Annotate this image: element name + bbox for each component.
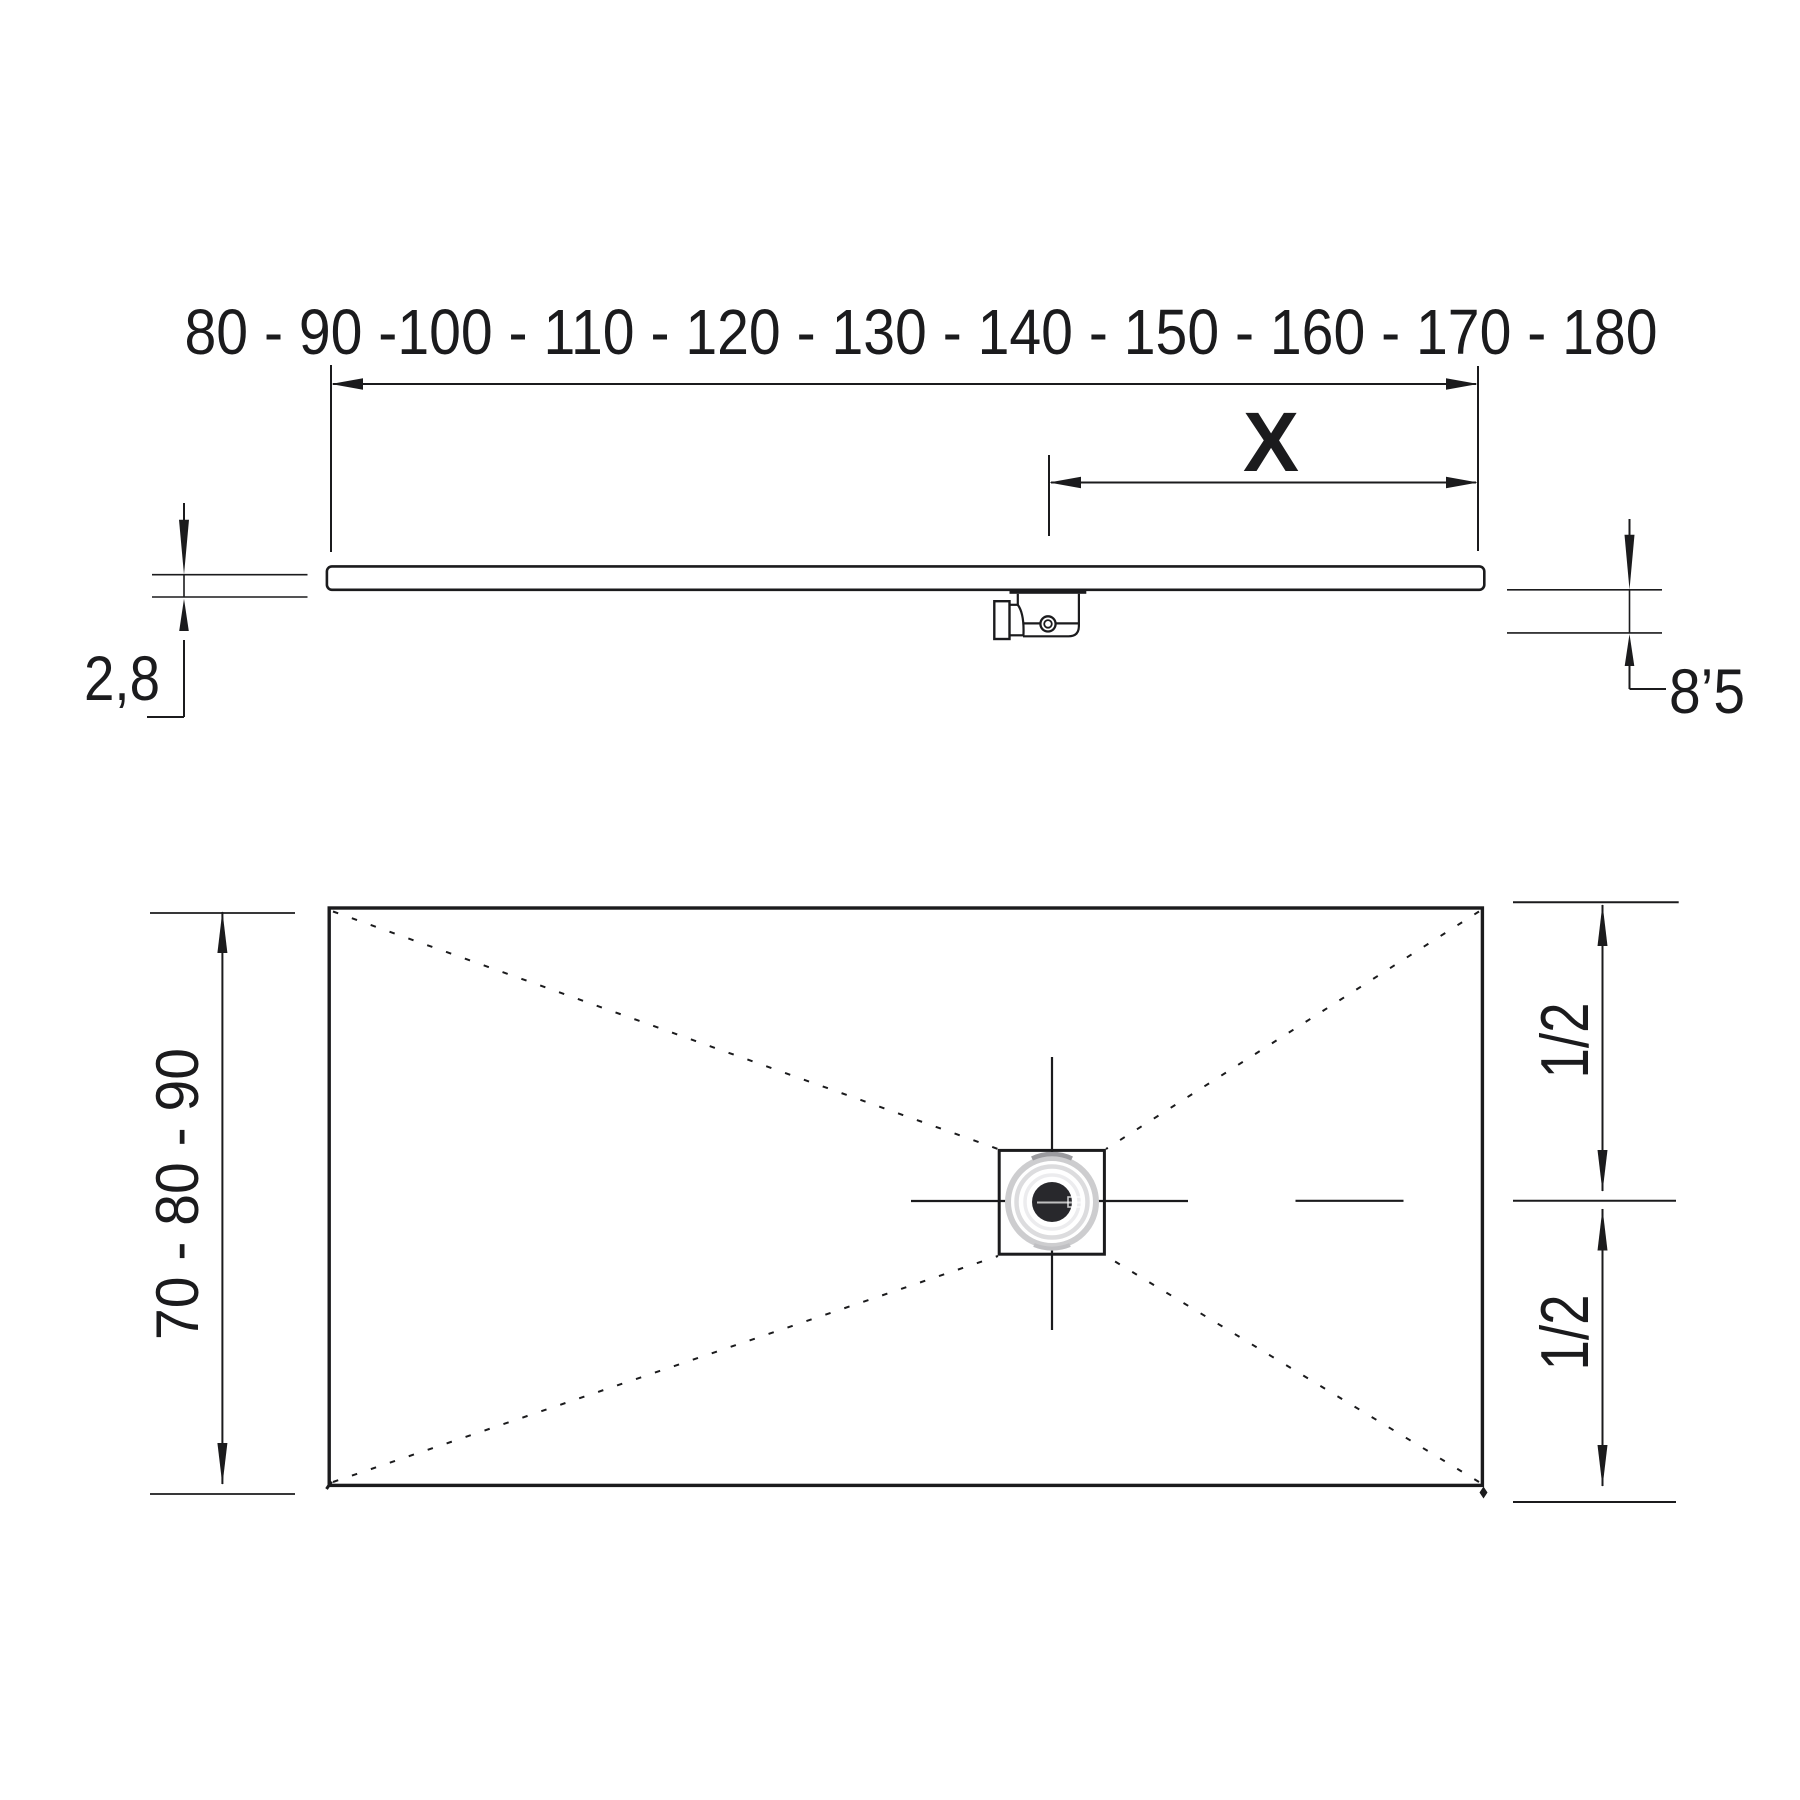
svg-text:70 - 80 - 90: 70 - 80 - 90 — [144, 1048, 211, 1340]
svg-text:X: X — [1243, 395, 1299, 489]
svg-text:2,8: 2,8 — [84, 644, 160, 714]
svg-text:80 - 90 -100 - 110 - 120 - 130: 80 - 90 -100 - 110 - 120 - 130 - 140 - 1… — [185, 296, 1658, 368]
svg-text:1/2: 1/2 — [1527, 1003, 1603, 1079]
svg-text:1/2: 1/2 — [1527, 1295, 1603, 1371]
svg-text:8’5: 8’5 — [1669, 657, 1745, 727]
